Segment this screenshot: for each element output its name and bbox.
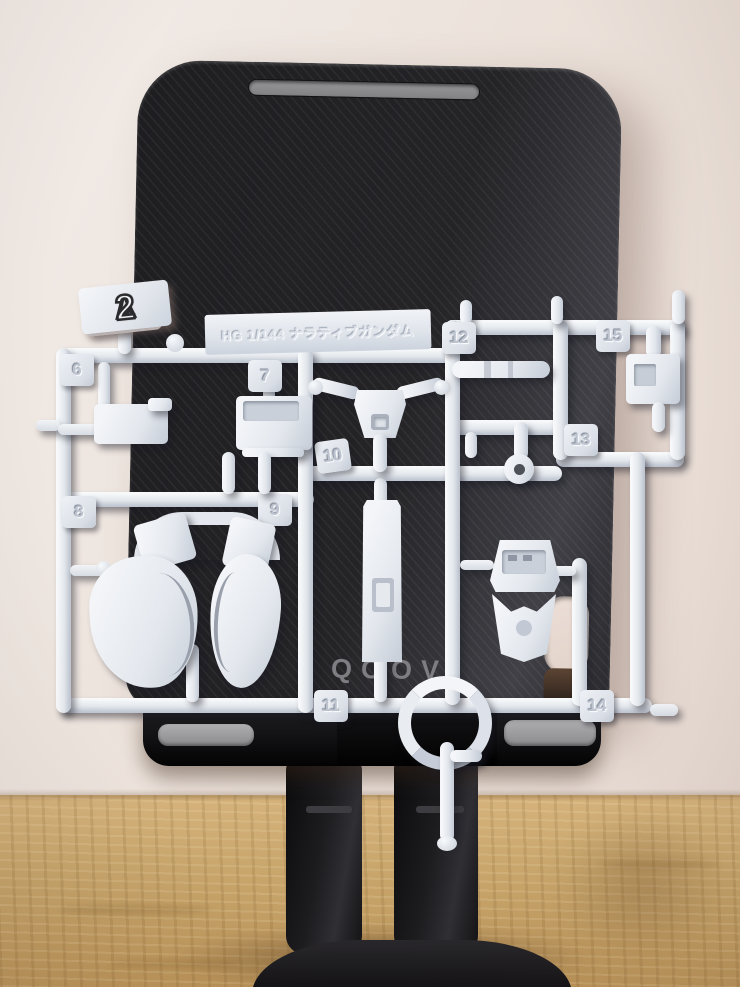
part-peg [258, 452, 271, 494]
blade-recess-inner [376, 583, 390, 607]
part-number-tag: 6 [60, 354, 94, 386]
backpack-stud [508, 555, 517, 561]
sprue-stub [460, 300, 472, 324]
part-number-tag: 7 [248, 360, 282, 392]
part-number-tag: 12 [442, 322, 476, 354]
runner-rail [58, 698, 652, 713]
part-chest-peg [373, 434, 387, 472]
part-blade [362, 500, 402, 662]
part-number-tag: 13 [564, 424, 598, 456]
part-number-tag: 14 [580, 690, 614, 722]
part-box-flange [242, 448, 304, 457]
sprue-stub [465, 432, 477, 458]
cylinder-band [484, 361, 491, 378]
box-opening [243, 401, 299, 421]
sprue-gate [374, 656, 387, 702]
chest-slot [371, 414, 389, 430]
ring-pin-tip [437, 836, 457, 851]
disc-hole [514, 464, 525, 475]
backpack-recess [502, 550, 546, 574]
ring-pin-crossbar [450, 750, 482, 762]
sprue-stub [650, 704, 678, 716]
runner-code-tab: A 2 [78, 279, 172, 334]
part-peg [652, 402, 665, 432]
runner-rail [445, 420, 567, 435]
sprue-gate [98, 362, 110, 408]
sprue-nub [166, 334, 184, 352]
part-square-box [626, 354, 680, 404]
part-backpack-upper [490, 540, 560, 592]
part-long-cylinder [452, 361, 550, 378]
square-box-notch [634, 364, 656, 386]
photo-scene: QOOVI [0, 0, 740, 987]
runner-rail [572, 558, 587, 706]
part-number-tag: 9 [258, 494, 292, 526]
sprue-gate [36, 420, 60, 431]
runner-rail [56, 348, 71, 713]
part-backpack-lower [492, 594, 556, 662]
part-chest [354, 390, 406, 438]
part-number-tag: 15 [596, 320, 630, 352]
kit-name-plate: HG 1/144 ナラティブガンダム [205, 309, 432, 355]
part-disc [504, 454, 534, 484]
sprue-stub [551, 296, 563, 324]
cylinder-band [508, 361, 513, 378]
part-peg [222, 452, 235, 494]
backpack-boss [516, 620, 532, 636]
sprue-gate [460, 560, 494, 570]
part-number-tag: 8 [62, 496, 96, 528]
backpack-stud [523, 555, 532, 561]
model-kit-runner: A 2 HG 1/144 ナラティブガンダム 6 7 8 9 10 11 12 … [0, 0, 740, 987]
runner-code-number: 2 [113, 289, 136, 326]
y-arm-ball [434, 380, 449, 395]
y-arm-ball [308, 380, 323, 395]
part-block-notch [148, 398, 172, 411]
part-number-tag: 10 [314, 438, 352, 474]
part-open-box [236, 396, 312, 450]
sprue-gate [58, 424, 98, 435]
part-number-tag: 11 [314, 690, 348, 722]
runner-rail [630, 452, 645, 706]
sprue-stub [672, 290, 685, 324]
